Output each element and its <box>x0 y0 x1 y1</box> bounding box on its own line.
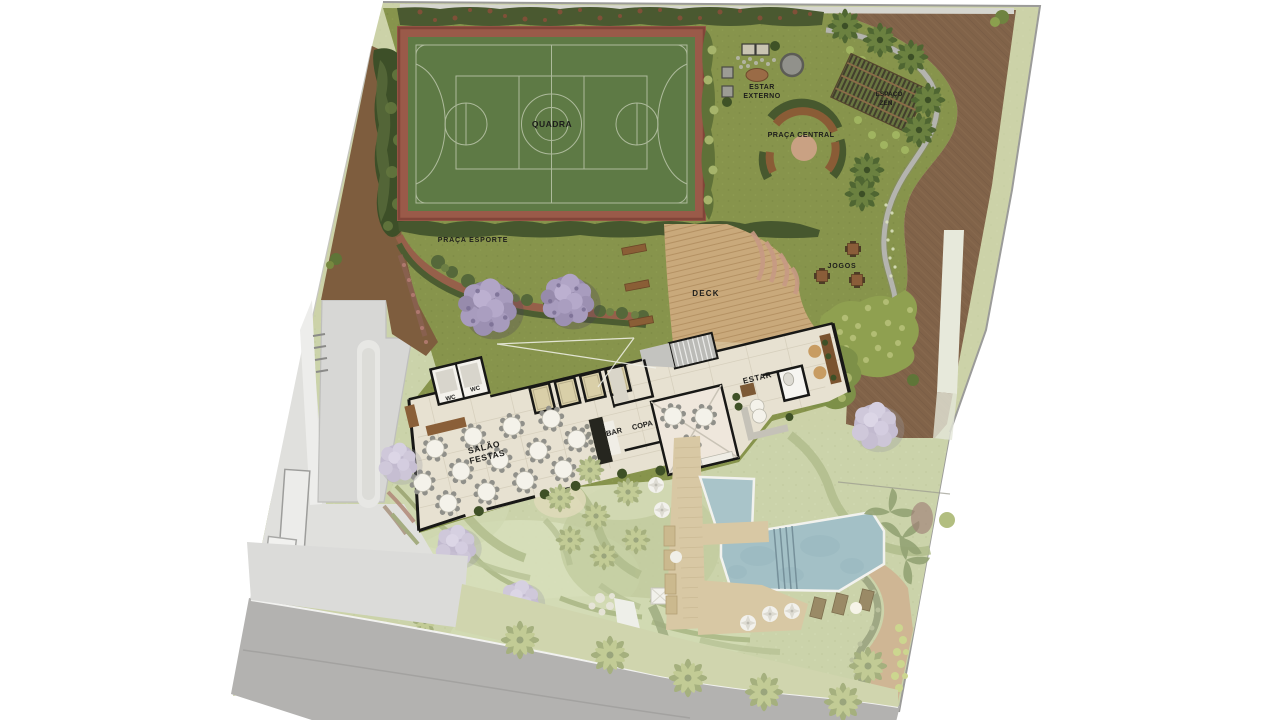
svg-text:ESPAÇO: ESPAÇO <box>876 91 903 98</box>
svg-text:DECK: DECK <box>692 289 719 298</box>
svg-text:QUADRA: QUADRA <box>532 119 572 129</box>
svg-text:ZEN: ZEN <box>880 100 893 107</box>
svg-text:EXTERNO: EXTERNO <box>743 93 780 100</box>
svg-text:PRAÇA CENTRAL: PRAÇA CENTRAL <box>768 130 835 139</box>
svg-text:JOGOS: JOGOS <box>828 263 857 270</box>
svg-text:PRAÇA ESPORTE: PRAÇA ESPORTE <box>438 237 508 244</box>
svg-text:ESTAR: ESTAR <box>749 84 775 91</box>
